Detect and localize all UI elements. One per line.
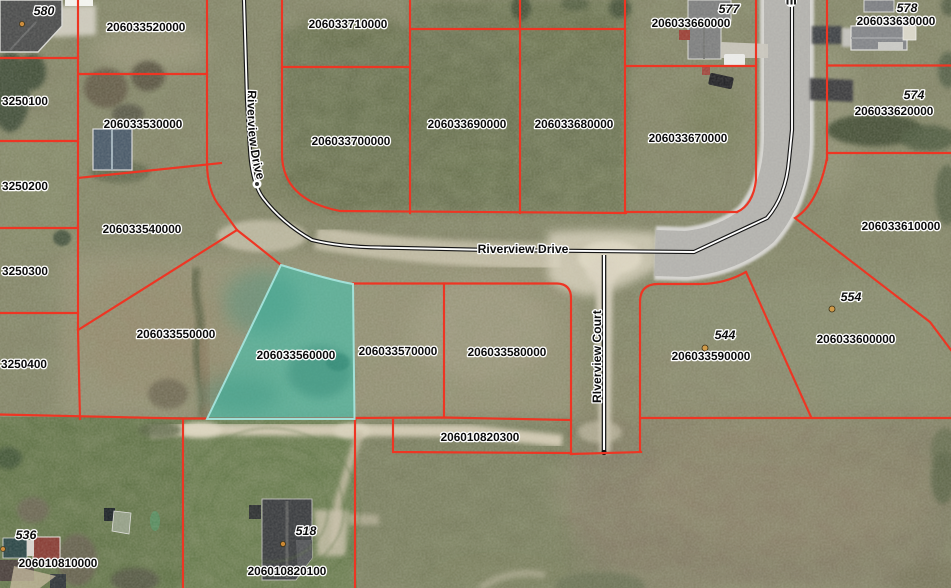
svg-text:3250300: 3250300	[2, 264, 48, 278]
svg-text:577: 577	[719, 2, 741, 16]
svg-text:206033630000: 206033630000	[857, 14, 936, 28]
svg-text:206010820300: 206010820300	[441, 430, 520, 444]
svg-text:206033700000: 206033700000	[312, 134, 391, 148]
svg-text:206033600000: 206033600000	[817, 332, 896, 346]
svg-text:206033690000: 206033690000	[428, 117, 507, 131]
svg-text:206010820100: 206010820100	[248, 564, 327, 578]
svg-text:206033530000: 206033530000	[104, 117, 183, 131]
svg-text:206033660000: 206033660000	[652, 16, 731, 30]
svg-text:206033580000: 206033580000	[468, 345, 547, 359]
svg-text:554: 554	[841, 290, 862, 304]
svg-text:206033570000: 206033570000	[359, 344, 438, 358]
svg-text:206033590000: 206033590000	[672, 349, 751, 363]
svg-text:544: 544	[715, 328, 736, 342]
svg-text:3250400: 3250400	[1, 357, 47, 371]
svg-text:206033520000: 206033520000	[107, 20, 186, 34]
svg-text:206033670000: 206033670000	[649, 131, 728, 145]
svg-text:578: 578	[897, 1, 918, 15]
svg-text:574: 574	[904, 88, 925, 102]
svg-text:Riverview Drive: Riverview Drive	[478, 242, 569, 256]
svg-text:518: 518	[296, 524, 317, 538]
svg-text:RIverview Court: RIverview Court	[590, 310, 604, 403]
svg-text:206033620000: 206033620000	[855, 104, 934, 118]
svg-text:536: 536	[16, 528, 37, 542]
svg-text:3250200: 3250200	[2, 179, 48, 193]
svg-text:206033710000: 206033710000	[309, 17, 388, 31]
svg-text:580: 580	[34, 4, 55, 18]
svg-text:206010810000: 206010810000	[19, 556, 98, 570]
svg-text:206033560000: 206033560000	[257, 348, 336, 362]
svg-text:206033550000: 206033550000	[137, 327, 216, 341]
svg-text:3250100: 3250100	[2, 94, 48, 108]
svg-text:206033680000: 206033680000	[535, 117, 614, 131]
svg-text:206033540000: 206033540000	[103, 222, 182, 236]
svg-text:206033610000: 206033610000	[862, 219, 941, 233]
